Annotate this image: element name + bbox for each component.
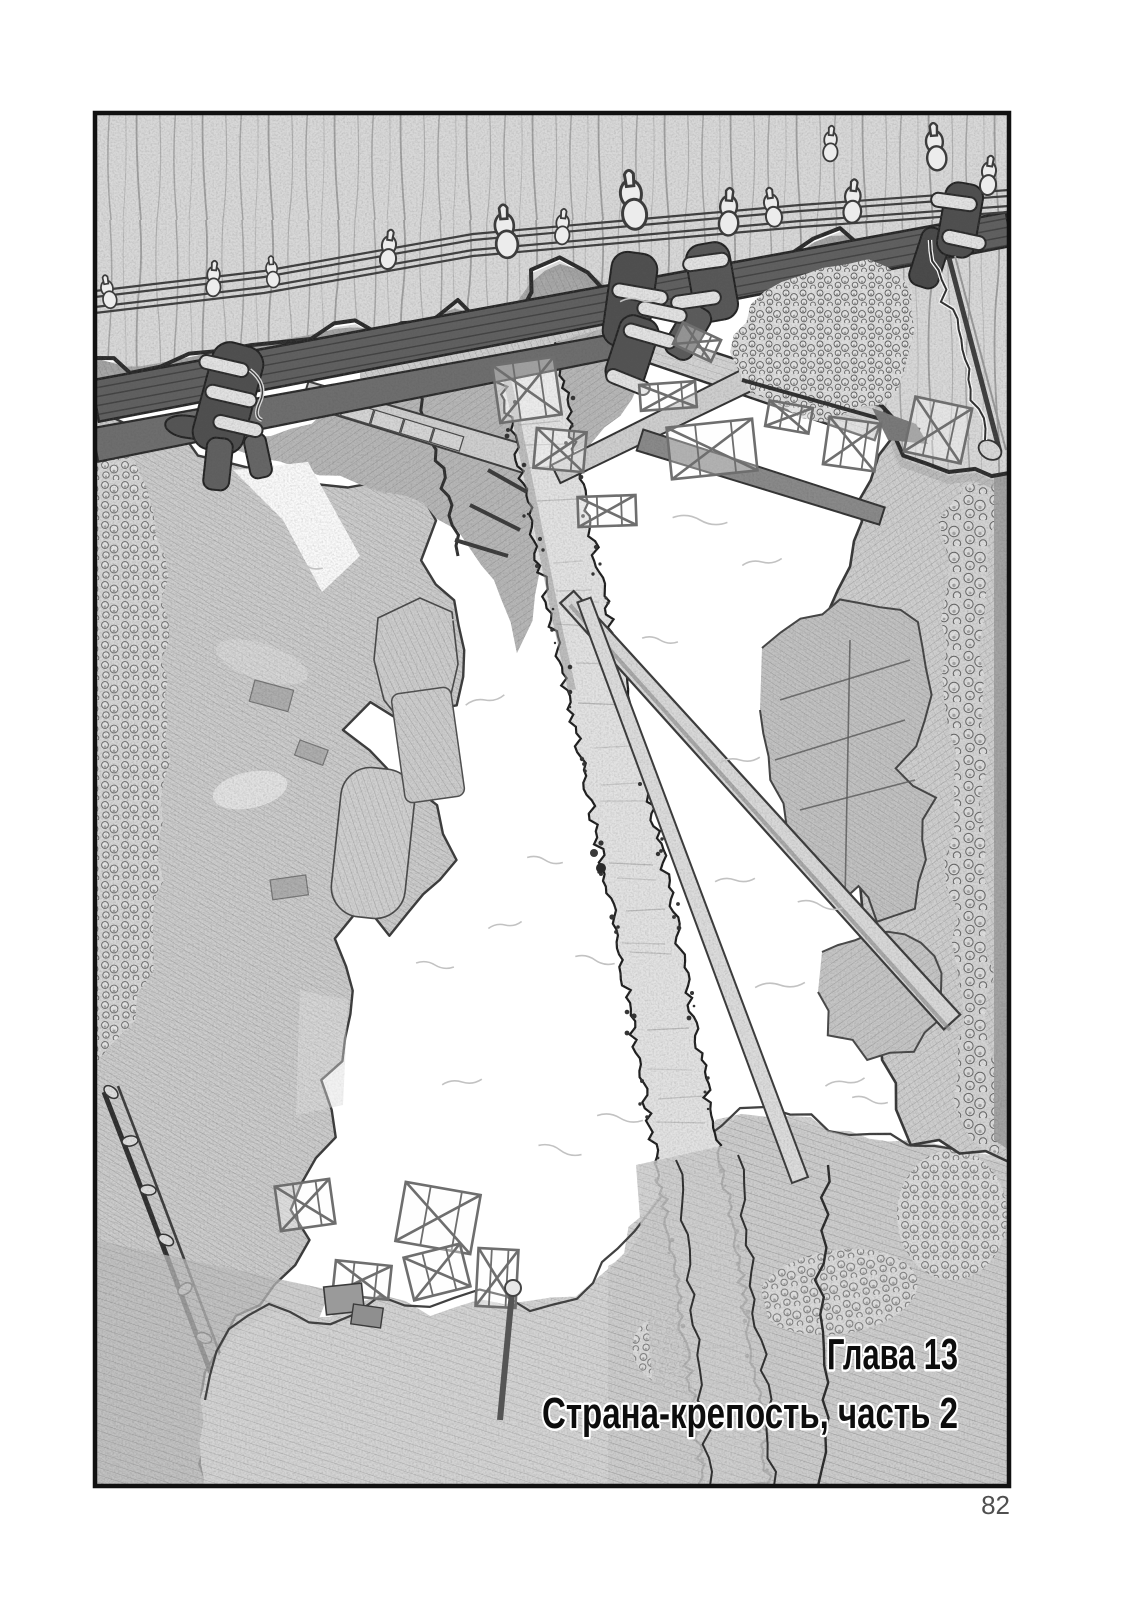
svg-text:Глава 13: Глава 13	[827, 1330, 958, 1379]
svg-text:82: 82	[981, 1490, 1010, 1520]
svg-text:Страна-крепость, часть 2: Страна-крепость, часть 2	[542, 1389, 958, 1438]
